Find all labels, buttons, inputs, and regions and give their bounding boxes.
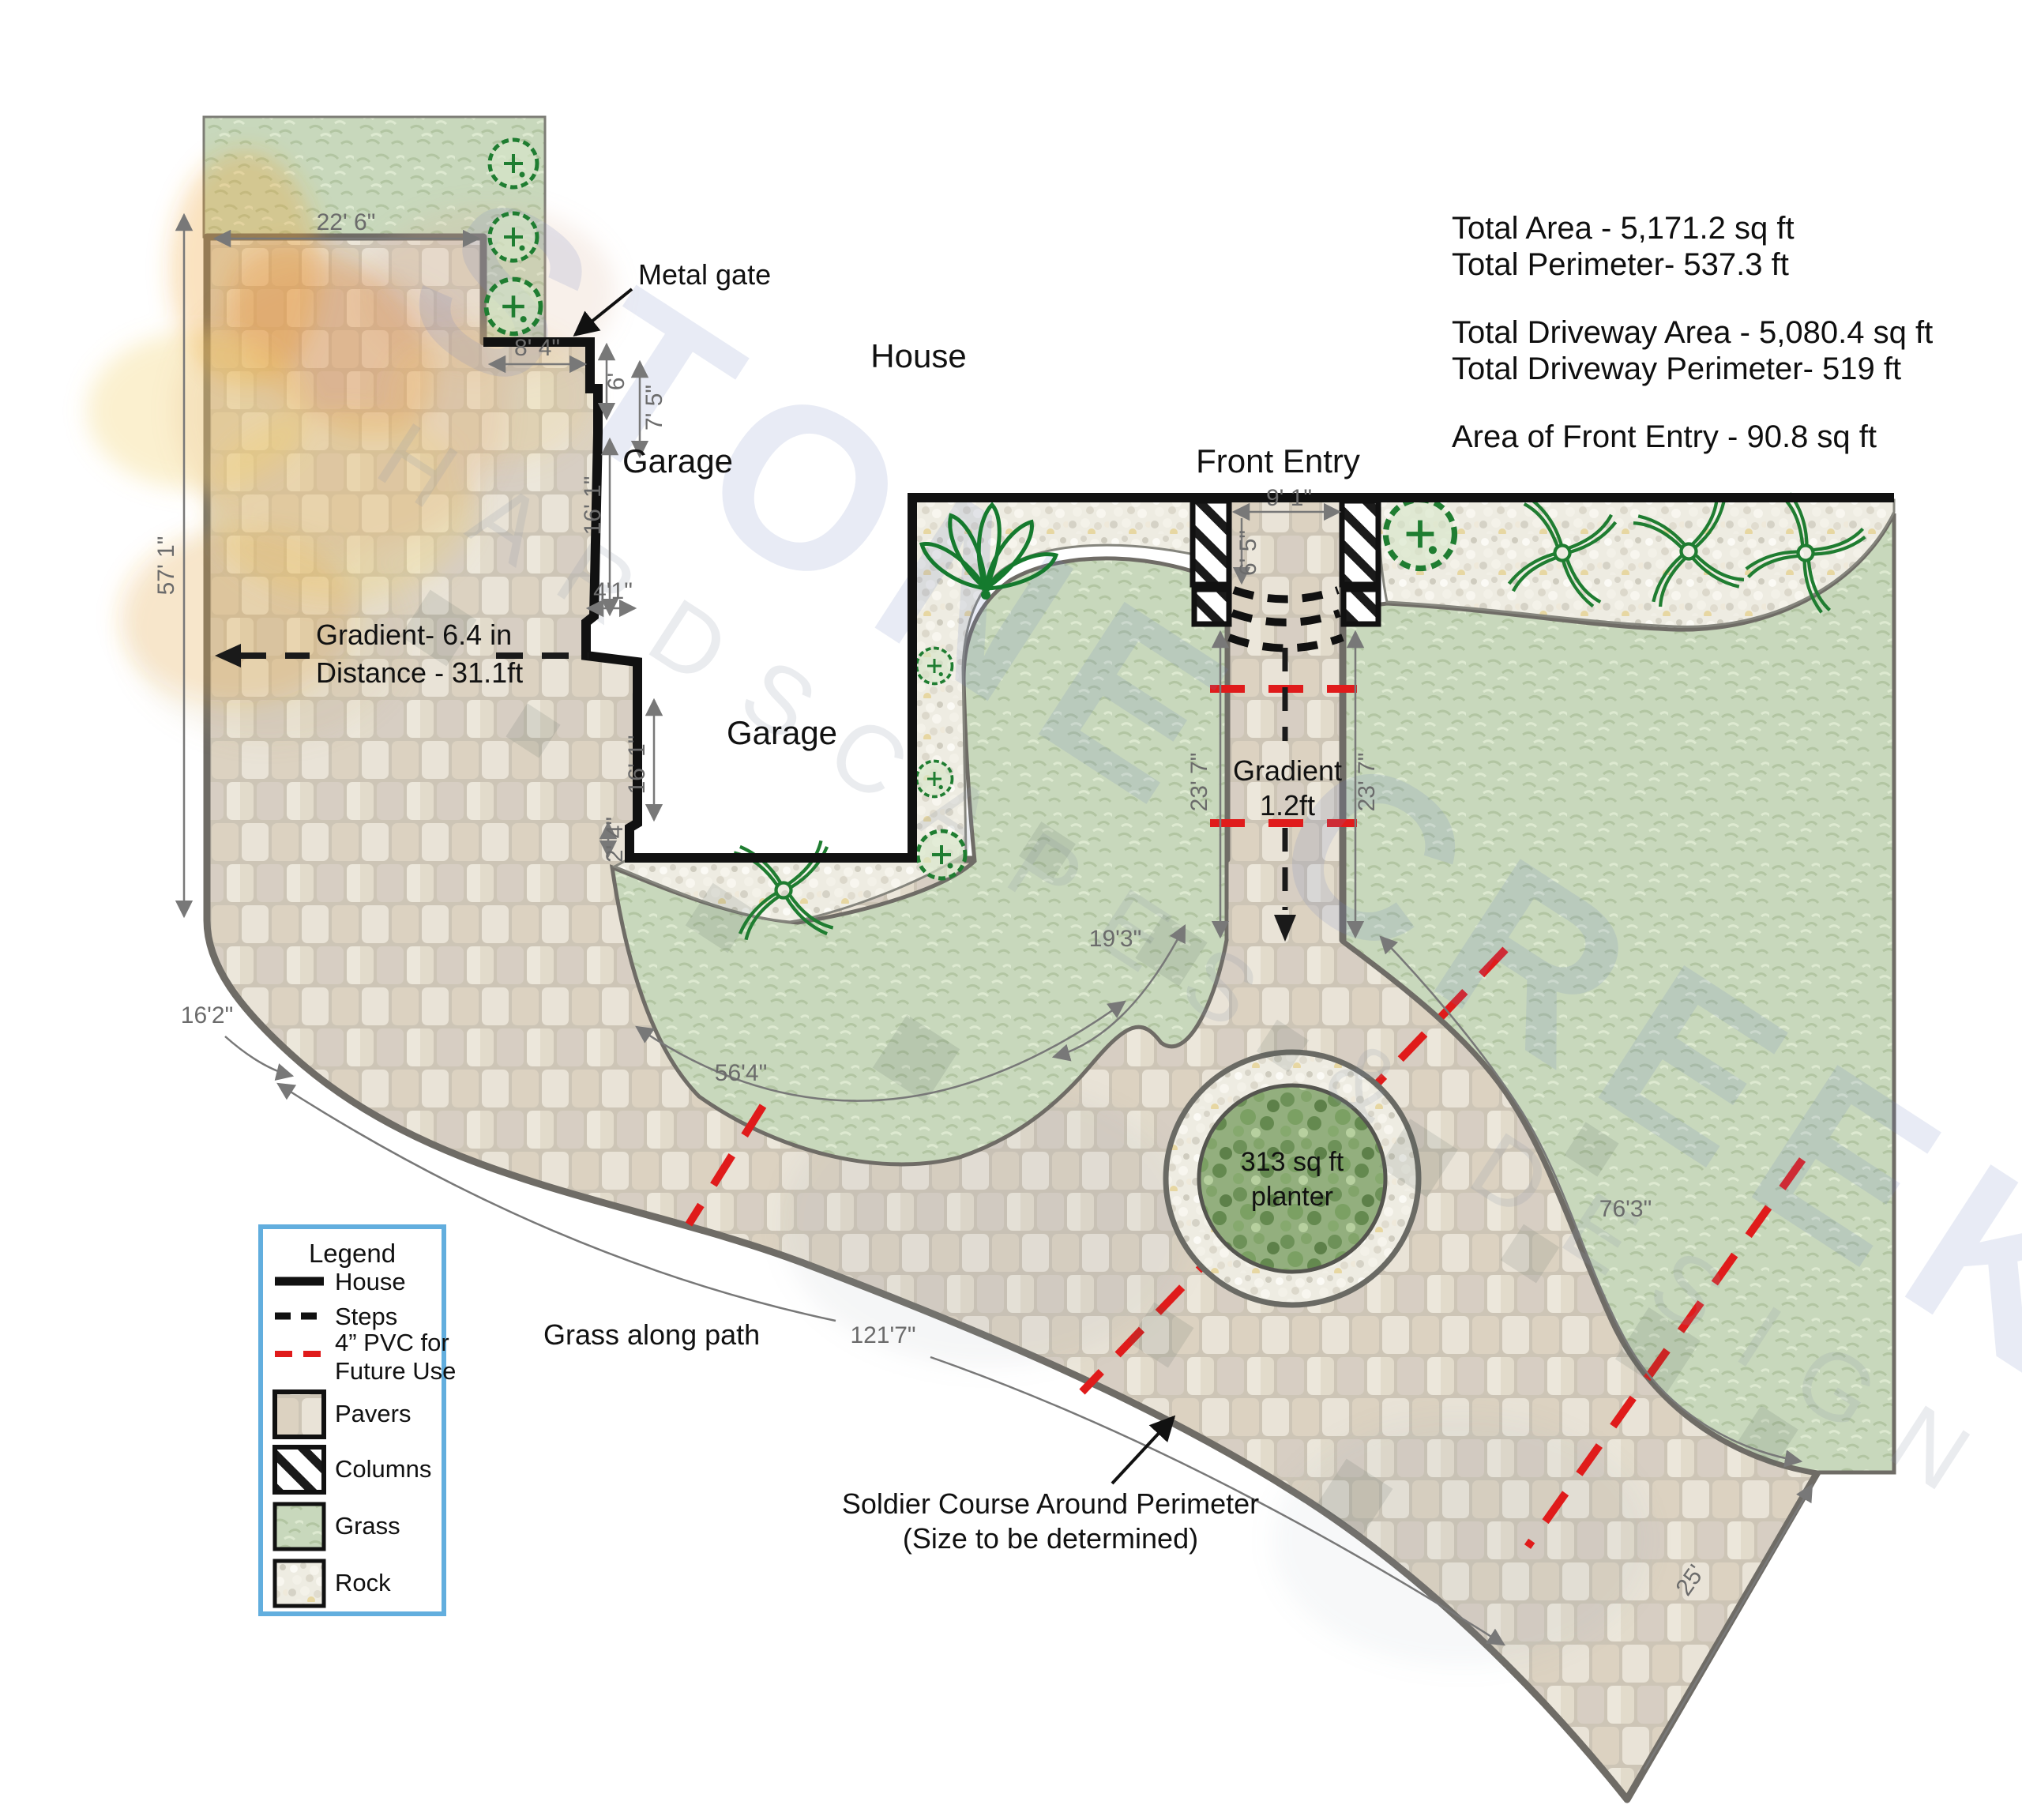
dim-right-curve: 76'3"	[1599, 1196, 1652, 1222]
shrub-icon	[487, 280, 541, 334]
legend-title: Legend	[309, 1239, 396, 1268]
garage-upper-label: Garage	[622, 442, 733, 479]
site-plan-canvas: STONE CREEK HARDSCAPES & DESIGN	[0, 0, 2022, 1820]
legend-grass-icon	[275, 1504, 324, 1549]
legend-columns-icon	[275, 1447, 324, 1492]
legend-rock-icon	[275, 1561, 324, 1606]
dim-top-width: 22' 6"	[317, 209, 376, 235]
column-icon	[1194, 589, 1229, 624]
stats-block: Total Area - 5,171.2 sq ft Total Perimet…	[1452, 211, 1933, 454]
dim-entry-width: 9' 1"	[1266, 485, 1312, 511]
soldier-course-line2: (Size to be determined)	[903, 1522, 1198, 1555]
planter	[1166, 1052, 1419, 1305]
column-icon	[1342, 501, 1378, 585]
legend-pavers-icon	[275, 1392, 324, 1437]
column-icon	[1193, 501, 1229, 585]
dim-entry-depth: 6' 5"	[1235, 530, 1261, 576]
legend-columns-label: Columns	[335, 1455, 431, 1483]
gradient-entry-line2: 1.2ft	[1260, 789, 1315, 822]
dim-gate-depth: 6'	[603, 373, 630, 390]
dim-bottom-left-curve: 16'2"	[181, 1002, 233, 1028]
grass-along-path-label: Grass along path	[543, 1318, 760, 1351]
legend-pvc-label2: Future Use	[335, 1357, 456, 1385]
gradient-left-line2: Distance - 31.1ft	[316, 656, 523, 689]
legend-rock-label: Rock	[335, 1569, 391, 1596]
gradient-entry-line1: Gradient	[1233, 754, 1342, 787]
front-entry-label: Front Entry	[1196, 442, 1360, 479]
shrub-icon	[490, 140, 537, 187]
legend-pavers-label: Pavers	[335, 1400, 411, 1427]
dim-walkway-left: 23' 7"	[1186, 753, 1212, 812]
soldier-course-line1: Soldier Course Around Perimeter	[842, 1487, 1259, 1520]
shrub-icon	[918, 831, 965, 878]
dim-left-height: 57' 1"	[153, 536, 179, 596]
stat-front-entry-area: Area of Front Entry - 90.8 sq ft	[1452, 419, 1877, 454]
dim-garage-lower-side: 16' 1"	[624, 735, 650, 795]
legend: Legend House Steps 4” PVC for Future Use…	[261, 1227, 456, 1614]
legend-house-label: House	[335, 1268, 406, 1295]
dim-path-length: 121'7"	[850, 1322, 915, 1348]
legend-pvc-label: 4” PVC for	[335, 1329, 449, 1356]
legend-grass-label: Grass	[335, 1512, 400, 1540]
dim-courtyard-mouth: 19'3"	[1089, 926, 1141, 952]
column-icon	[1344, 589, 1378, 624]
metal-gate-label: Metal gate	[638, 258, 771, 291]
dim-garage-corner: 2' 4"	[602, 817, 628, 863]
shrub-icon	[1386, 500, 1455, 569]
soldier-course-leader	[1112, 1417, 1174, 1483]
legend-steps-label: Steps	[335, 1303, 397, 1330]
garage-lower-label: Garage	[727, 714, 837, 751]
dim-gate-width: 8' 4"	[514, 335, 560, 361]
stat-total-area: Total Area - 5,171.2 sq ft	[1452, 211, 1795, 246]
shrub-icon	[917, 761, 953, 797]
dim-walkway-right: 23' 7"	[1354, 753, 1380, 812]
planter-label-line1: 313 sq ft	[1241, 1147, 1344, 1177]
stat-driveway-perimeter: Total Driveway Perimeter- 519 ft	[1452, 352, 1901, 386]
stat-total-perimeter: Total Perimeter- 537.3 ft	[1452, 247, 1789, 282]
dim-island-curve: 56'4"	[715, 1060, 767, 1086]
gradient-left-line1: Gradient- 6.4 in	[316, 619, 512, 651]
shrub-icon	[917, 649, 953, 684]
shrub-icon	[490, 213, 537, 261]
dim-garage-step: 4'1"	[593, 578, 633, 604]
planter-label-line2: planter	[1251, 1182, 1333, 1212]
dim-gate-offset: 7' 5"	[641, 385, 667, 431]
dim-garage-upper-side: 16' 1"	[580, 476, 606, 536]
house-label: House	[870, 337, 966, 374]
stat-driveway-area: Total Driveway Area - 5,080.4 sq ft	[1452, 315, 1933, 350]
